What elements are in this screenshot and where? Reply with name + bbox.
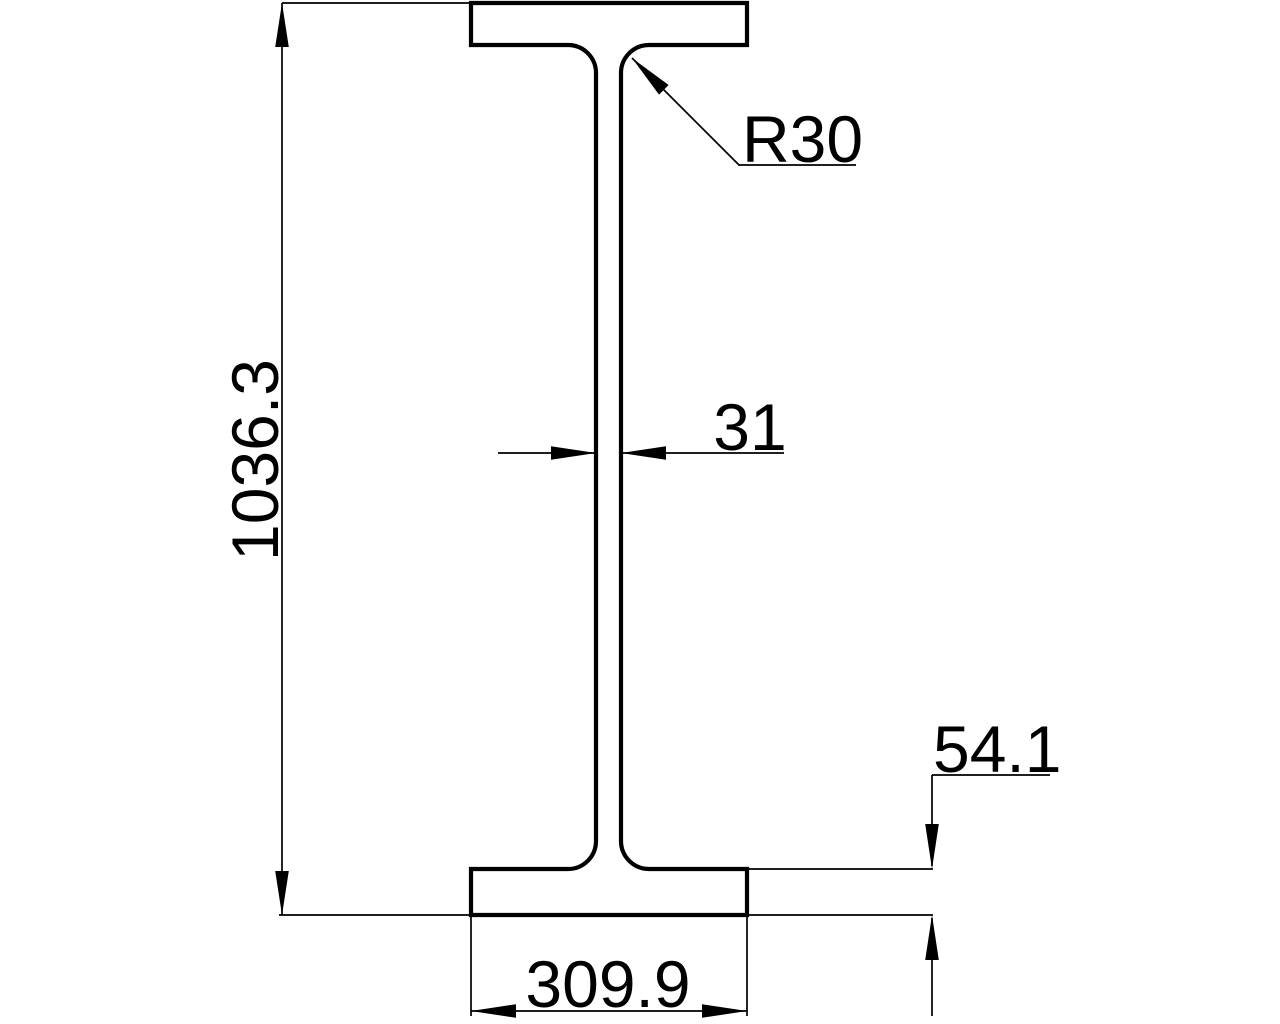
arrowhead-down-icon bbox=[925, 824, 939, 869]
dim-overall-height: 1036.3 bbox=[218, 3, 471, 915]
arrowhead-up-icon bbox=[925, 915, 939, 960]
dim-web-thickness: 31 bbox=[498, 390, 787, 464]
dim-label-flange-width: 309.9 bbox=[525, 947, 690, 1021]
dim-flange-width: 309.9 bbox=[471, 917, 747, 1021]
drawing-page: 1036.3 R30 31 54.1 bbox=[0, 0, 1280, 1024]
dim-label-overall-height: 1036.3 bbox=[218, 359, 292, 561]
ibeam-outline bbox=[471, 3, 747, 915]
arrowhead-leader-icon bbox=[632, 58, 669, 95]
arrowhead-left-icon bbox=[621, 446, 666, 460]
arrowhead-up-icon bbox=[275, 3, 289, 47]
arrowhead-right-icon bbox=[702, 1004, 747, 1018]
dim-flange-thickness: 54.1 bbox=[747, 712, 1061, 1016]
arrowhead-left-icon bbox=[471, 1004, 516, 1018]
leader-fillet-radius: R30 bbox=[632, 58, 863, 176]
dim-label-web-thickness: 31 bbox=[713, 390, 786, 464]
dim-label-flange-thickness: 54.1 bbox=[933, 712, 1061, 786]
arrowhead-right-icon bbox=[551, 446, 596, 460]
arrowhead-down-icon bbox=[275, 871, 289, 915]
dim-label-fillet-radius: R30 bbox=[742, 102, 863, 176]
ibeam-technical-drawing: 1036.3 R30 31 54.1 bbox=[0, 0, 1280, 1024]
